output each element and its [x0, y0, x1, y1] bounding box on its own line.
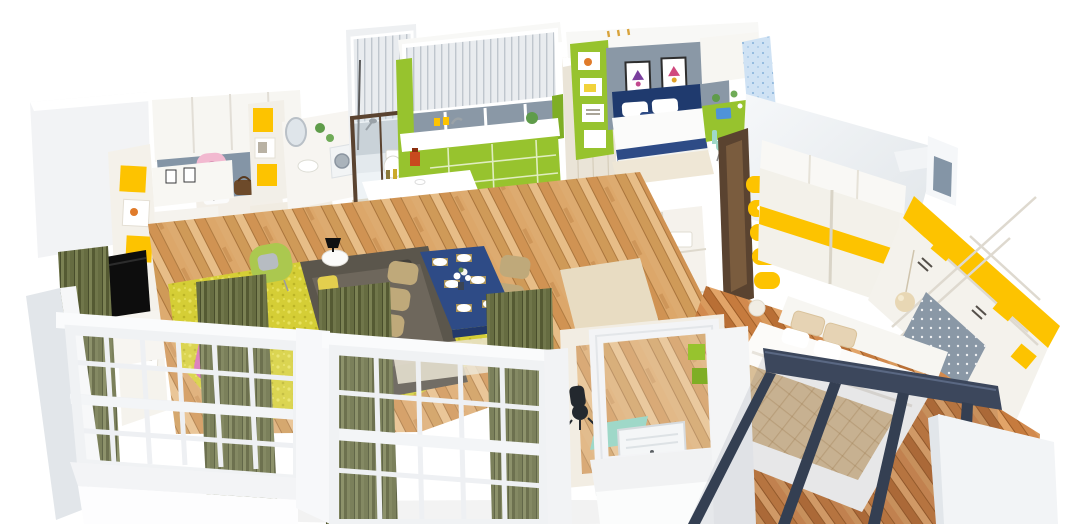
basin: [298, 160, 318, 172]
floorplan-canvas: [0, 0, 1071, 524]
shelf-cubby-yellow: [119, 165, 146, 192]
bedside-stool: [749, 300, 765, 316]
desk-cup: [738, 104, 743, 109]
kitchen-window-blinds: [404, 30, 558, 114]
round-mirror: [286, 118, 306, 146]
grid-window-b: [334, 350, 544, 524]
corner-post: [296, 328, 330, 524]
lime-wall-cube: [688, 344, 705, 360]
plant-2: [326, 134, 334, 142]
bottle: [386, 170, 390, 179]
plant: [315, 123, 325, 133]
grid-window-a: [70, 330, 298, 524]
orange-toy: [130, 208, 138, 216]
picture-frame: [166, 170, 176, 183]
picture-frame-2: [184, 168, 195, 182]
yellow-cup-2: [443, 117, 449, 125]
plate-on-bar: [415, 180, 425, 185]
bottle-2: [393, 169, 397, 179]
right-plinth: [938, 414, 1058, 524]
slate-panel: [933, 156, 952, 197]
entry-yellow-cubbies: [248, 100, 288, 204]
yellow-cup: [434, 118, 440, 126]
crown-poster-2: [661, 58, 686, 91]
vanity-area: [282, 110, 358, 210]
wall-strip-right-of-b: [544, 348, 572, 524]
blue-laptop: [716, 107, 732, 119]
apartment-3d-floorplan: [0, 0, 1071, 524]
kids-plant: [712, 94, 720, 102]
counter-plant: [526, 112, 538, 124]
door-split: [830, 190, 832, 284]
lime-wall-cube-2: [692, 368, 709, 384]
kids-plant-2: [731, 91, 738, 98]
